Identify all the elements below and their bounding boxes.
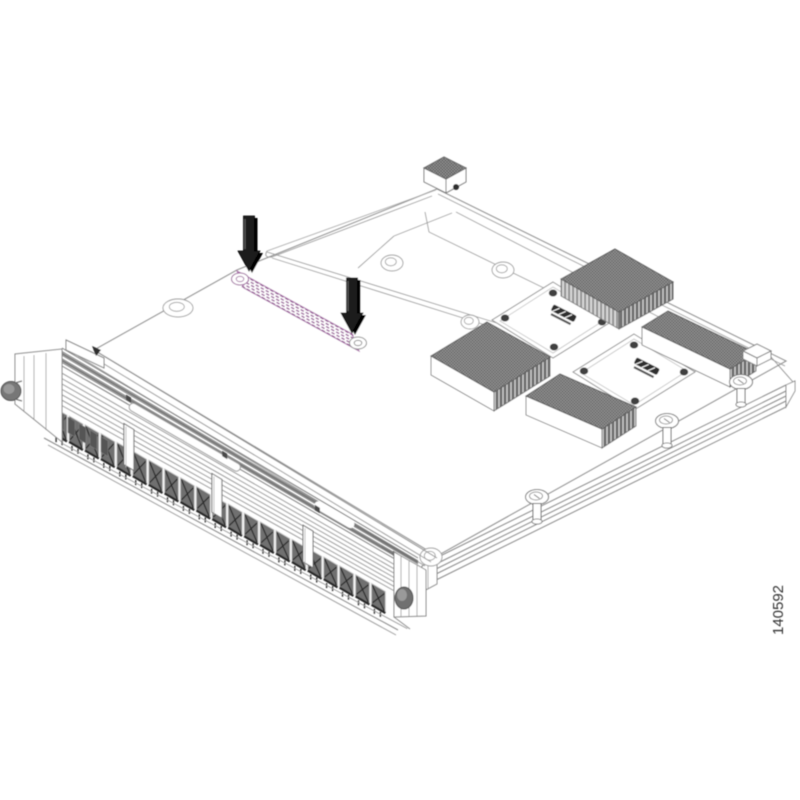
svg-text:140592: 140592 xyxy=(770,585,787,635)
